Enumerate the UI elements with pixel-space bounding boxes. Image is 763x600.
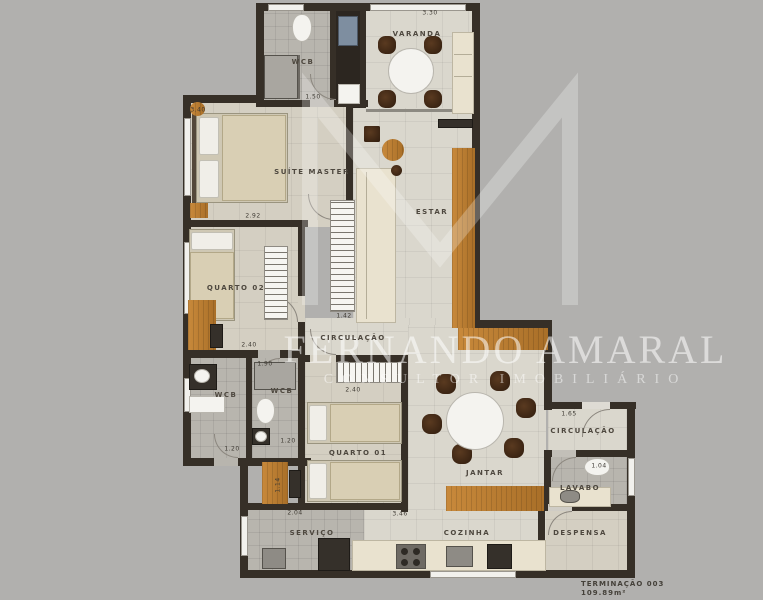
dim-wcb-top: 1.50 — [305, 94, 320, 101]
wcb1-sink — [194, 369, 210, 383]
door-gap-lavabo — [552, 450, 576, 457]
dim-quarto02-bottom: 2.40 — [241, 342, 256, 349]
room-label-circulacao-entry: CIRCULAÇÃO — [550, 427, 615, 435]
quarto01-duvet-2 — [330, 462, 400, 500]
room-label-cozinha: COZINHA — [444, 529, 490, 537]
dim-quarto01-left: 1.14 — [275, 477, 282, 492]
varanda-chair — [424, 36, 442, 54]
dim-closet-hall: 1.42 — [336, 313, 351, 320]
jantar-chair — [504, 438, 524, 458]
dim-quarto01-closet: 2.40 — [345, 387, 360, 394]
room-label-varanda: VARANDA — [393, 30, 442, 38]
suite-headboard — [192, 113, 196, 203]
cozinha-appliance — [487, 544, 512, 569]
dim-wcb2-bottom: 1.20 — [280, 438, 295, 445]
room-label-servico: SERVIÇO — [290, 529, 335, 537]
dim-circulacao-entry: 1.65 — [561, 411, 576, 418]
jantar-chair — [516, 398, 536, 418]
quarto01-duvet-1 — [330, 404, 400, 442]
dim-varanda-width: 3.30 — [422, 10, 437, 17]
room-label-circulacao: CIRCULAÇÃO — [320, 334, 385, 342]
room-label-lavabo: LAVABO — [560, 484, 600, 492]
unit-area-caption: 109.89m² — [581, 589, 626, 597]
door-gap-entry — [582, 402, 610, 409]
window-varanda — [370, 4, 466, 11]
dim-suite-width: 3.40 — [190, 107, 205, 114]
window-servico — [241, 516, 248, 556]
room-label-quarto-01: QUARTO 01 — [329, 449, 387, 457]
wall-servico-top — [240, 503, 408, 510]
wcb2-sink — [255, 431, 267, 442]
cozinha-sink — [446, 546, 473, 567]
window-cozinha — [430, 571, 516, 578]
floor-plan: FERNANDO AMARAL CONSULTOR IMOBILIÁRIO VA… — [0, 0, 763, 600]
stove-burner — [401, 559, 408, 566]
unit-code-caption: TERMINAÇÃO 003 — [581, 580, 664, 588]
quarto01-pillow-2 — [309, 463, 327, 499]
jantar-round-table — [446, 392, 504, 450]
dim-lavabo: 1.04 — [591, 463, 606, 470]
wall-left-top-section — [256, 3, 264, 103]
suite-pillow — [199, 117, 219, 155]
window-lavabo — [628, 458, 635, 496]
varanda-chair — [378, 36, 396, 54]
room-label-suite-master: SUÍTE MASTER — [274, 168, 350, 176]
jantar-chair — [422, 414, 442, 434]
water-heater — [338, 16, 358, 46]
room-label-wcb-top: WCB — [292, 58, 315, 66]
quarto01-pillow-1 — [309, 405, 327, 441]
dim-servico-width: 2.04 — [287, 510, 302, 517]
wall-wcb-bottom — [183, 458, 311, 466]
quarto02-tv — [210, 324, 223, 348]
dim-cozinha-width: 3.46 — [392, 511, 407, 518]
room-label-despensa: DESPENSA — [553, 529, 607, 537]
door-gap-wcb1 — [214, 458, 238, 466]
stove-burner — [413, 548, 420, 555]
room-label-wcb-2: WCB — [271, 387, 294, 395]
servico-cabinet — [318, 538, 350, 571]
window-wcb-top — [268, 4, 304, 11]
dim-suite-bottom: 2.92 — [245, 213, 260, 220]
suite-nightstand — [190, 203, 208, 218]
room-label-quarto-02: QUARTO 02 — [207, 284, 265, 292]
room-label-estar: ESTAR — [416, 208, 448, 216]
dim-wcb2-width: 1.90 — [257, 361, 272, 368]
dim-wcb1-bottom: 1.20 — [224, 446, 239, 453]
room-label-wcb-1: WCB — [215, 391, 238, 399]
quarto02-pillow — [191, 232, 233, 250]
stove-burner — [413, 559, 420, 566]
servico-washer — [262, 548, 286, 569]
jantar-sideboard — [446, 486, 544, 511]
quarto01-tv — [289, 470, 301, 498]
cozinha-stove — [396, 544, 426, 569]
wcb2-toilet — [256, 398, 275, 424]
toilet — [292, 14, 312, 42]
window-suite — [184, 118, 191, 196]
watermark-title: CONSULTOR IMOBILIÁRIO — [258, 372, 753, 388]
stove-burner — [401, 548, 408, 555]
suite-pillow — [199, 160, 219, 198]
room-label-jantar: JANTAR — [466, 469, 504, 477]
